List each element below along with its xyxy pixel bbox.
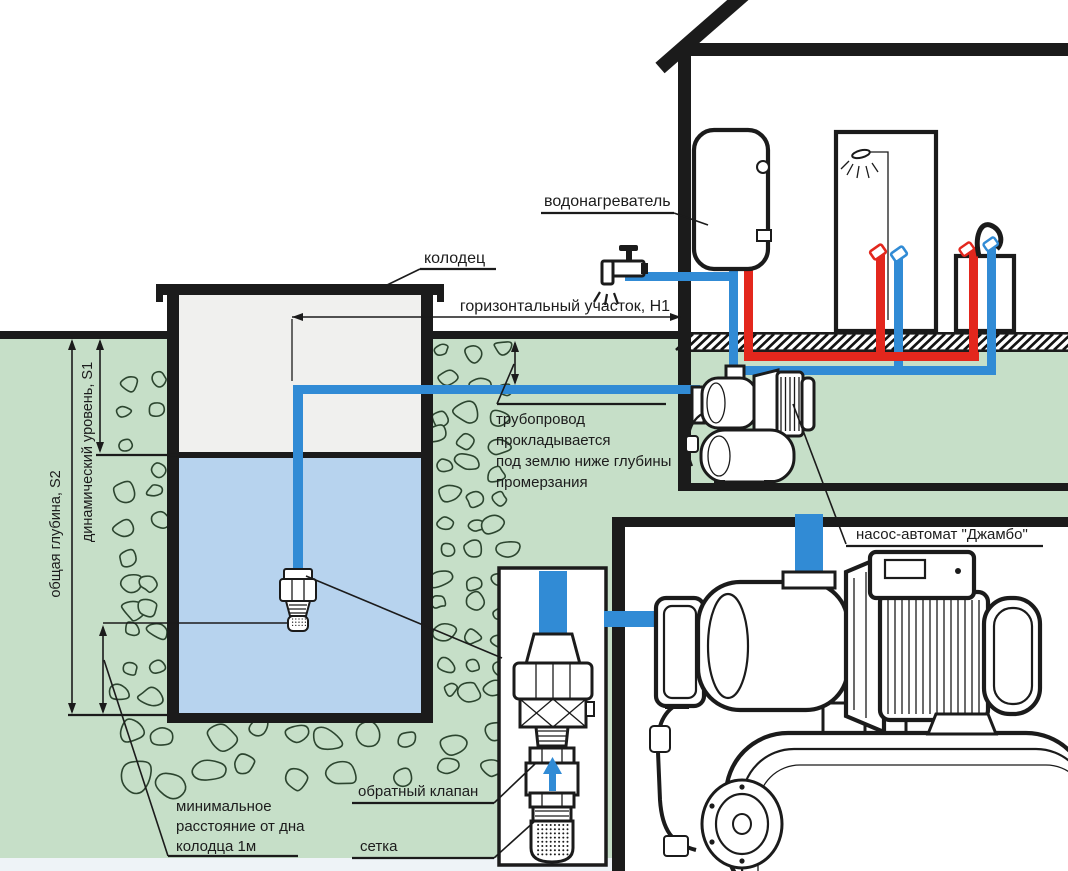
shower-stall [836, 132, 936, 331]
min-distance-line: расстояние от дна [176, 817, 304, 837]
water-heater [694, 130, 771, 269]
min-distance-note: минимальное расстояние от дна колодца 1м [176, 797, 304, 857]
min-distance-line: колодца 1м [176, 837, 304, 857]
total-depth-label: общая глубина, S2 [48, 470, 64, 597]
well-label: колодец [424, 248, 485, 269]
basement-floor-line [678, 483, 1068, 491]
pipeline-note-line: трубопровод [496, 409, 671, 430]
check-valve-label: обратный клапан [358, 781, 478, 802]
pipeline-note-line: промерзания [496, 472, 671, 493]
strainer-item [531, 807, 573, 862]
roof-line [660, 0, 747, 68]
house-ceiling [678, 43, 1068, 56]
pump-station-label: насос-автомат "Джамбо" [856, 524, 1028, 545]
water-heater-label: водонагреватель [544, 191, 671, 212]
main-suction-pipe [293, 385, 700, 394]
sink-cabinet [956, 256, 1014, 331]
well-drop-pipe [293, 385, 303, 573]
hot-manifold [744, 352, 979, 361]
pipeline-note-line: под землю ниже глубины [496, 451, 671, 472]
house-left-wall [678, 43, 691, 491]
pump-body [698, 582, 848, 710]
pipeline-note-line: прокладывается [496, 430, 671, 451]
horizontal-section-label: горизонтальный участок, Н1 [445, 296, 685, 317]
well-cap [156, 284, 444, 295]
min-distance-line: минимальное [176, 797, 304, 817]
well-water-supply-diagram: колодец горизонтальный участок, Н1 водон… [0, 0, 1068, 871]
check-valve-item [526, 748, 578, 807]
dynamic-level-label: динамический уровень, S1 [80, 362, 96, 542]
strainer-label: сетка [360, 836, 397, 857]
pipeline-note: трубопровод прокладывается под землю ниж… [496, 409, 671, 493]
